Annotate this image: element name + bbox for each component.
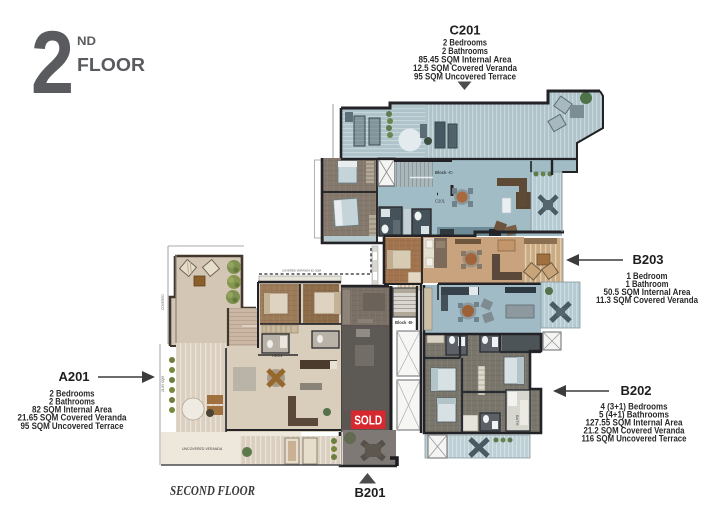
svg-text:COVERED: COVERED bbox=[161, 294, 165, 310]
svg-text:Block -C-: Block -C- bbox=[435, 170, 454, 175]
svg-text:ND: ND bbox=[77, 34, 96, 48]
svg-text:UNCOVERED VERANDA: UNCOVERED VERANDA bbox=[182, 447, 223, 451]
svg-text:11.3 SQM Covered Veranda: 11.3 SQM Covered Veranda bbox=[596, 295, 699, 305]
svg-text:B201: B201 bbox=[354, 485, 385, 500]
svg-text:BATH: BATH bbox=[515, 415, 520, 425]
svg-text:95 SQM Uncovered Terrace: 95 SQM Uncovered Terrace bbox=[21, 421, 124, 431]
svg-text:SECOND FLOOR: SECOND FLOOR bbox=[170, 483, 255, 498]
svg-text:2: 2 bbox=[31, 12, 74, 112]
svg-text:C201: C201 bbox=[435, 199, 446, 204]
svg-text:C201: C201 bbox=[449, 23, 480, 38]
svg-text:Block -B-: Block -B- bbox=[395, 320, 414, 325]
svg-text:B203: B203 bbox=[632, 252, 663, 267]
svg-text:A201: A201 bbox=[272, 353, 283, 358]
svg-text:95 SQM Uncovered Terrace: 95 SQM Uncovered Terrace bbox=[414, 71, 516, 81]
svg-text:B202: B202 bbox=[620, 383, 651, 398]
svg-text:SOLD: SOLD bbox=[354, 414, 382, 428]
svg-text:A201: A201 bbox=[58, 369, 89, 384]
svg-text:116 SQM Uncovered Terrace: 116 SQM Uncovered Terrace bbox=[582, 434, 687, 444]
svg-text:COVERED VERANDA 82 SQM: COVERED VERANDA 82 SQM bbox=[282, 269, 322, 273]
svg-text:FLOOR: FLOOR bbox=[77, 55, 145, 75]
svg-text:21.65 SQM: 21.65 SQM bbox=[161, 376, 165, 392]
